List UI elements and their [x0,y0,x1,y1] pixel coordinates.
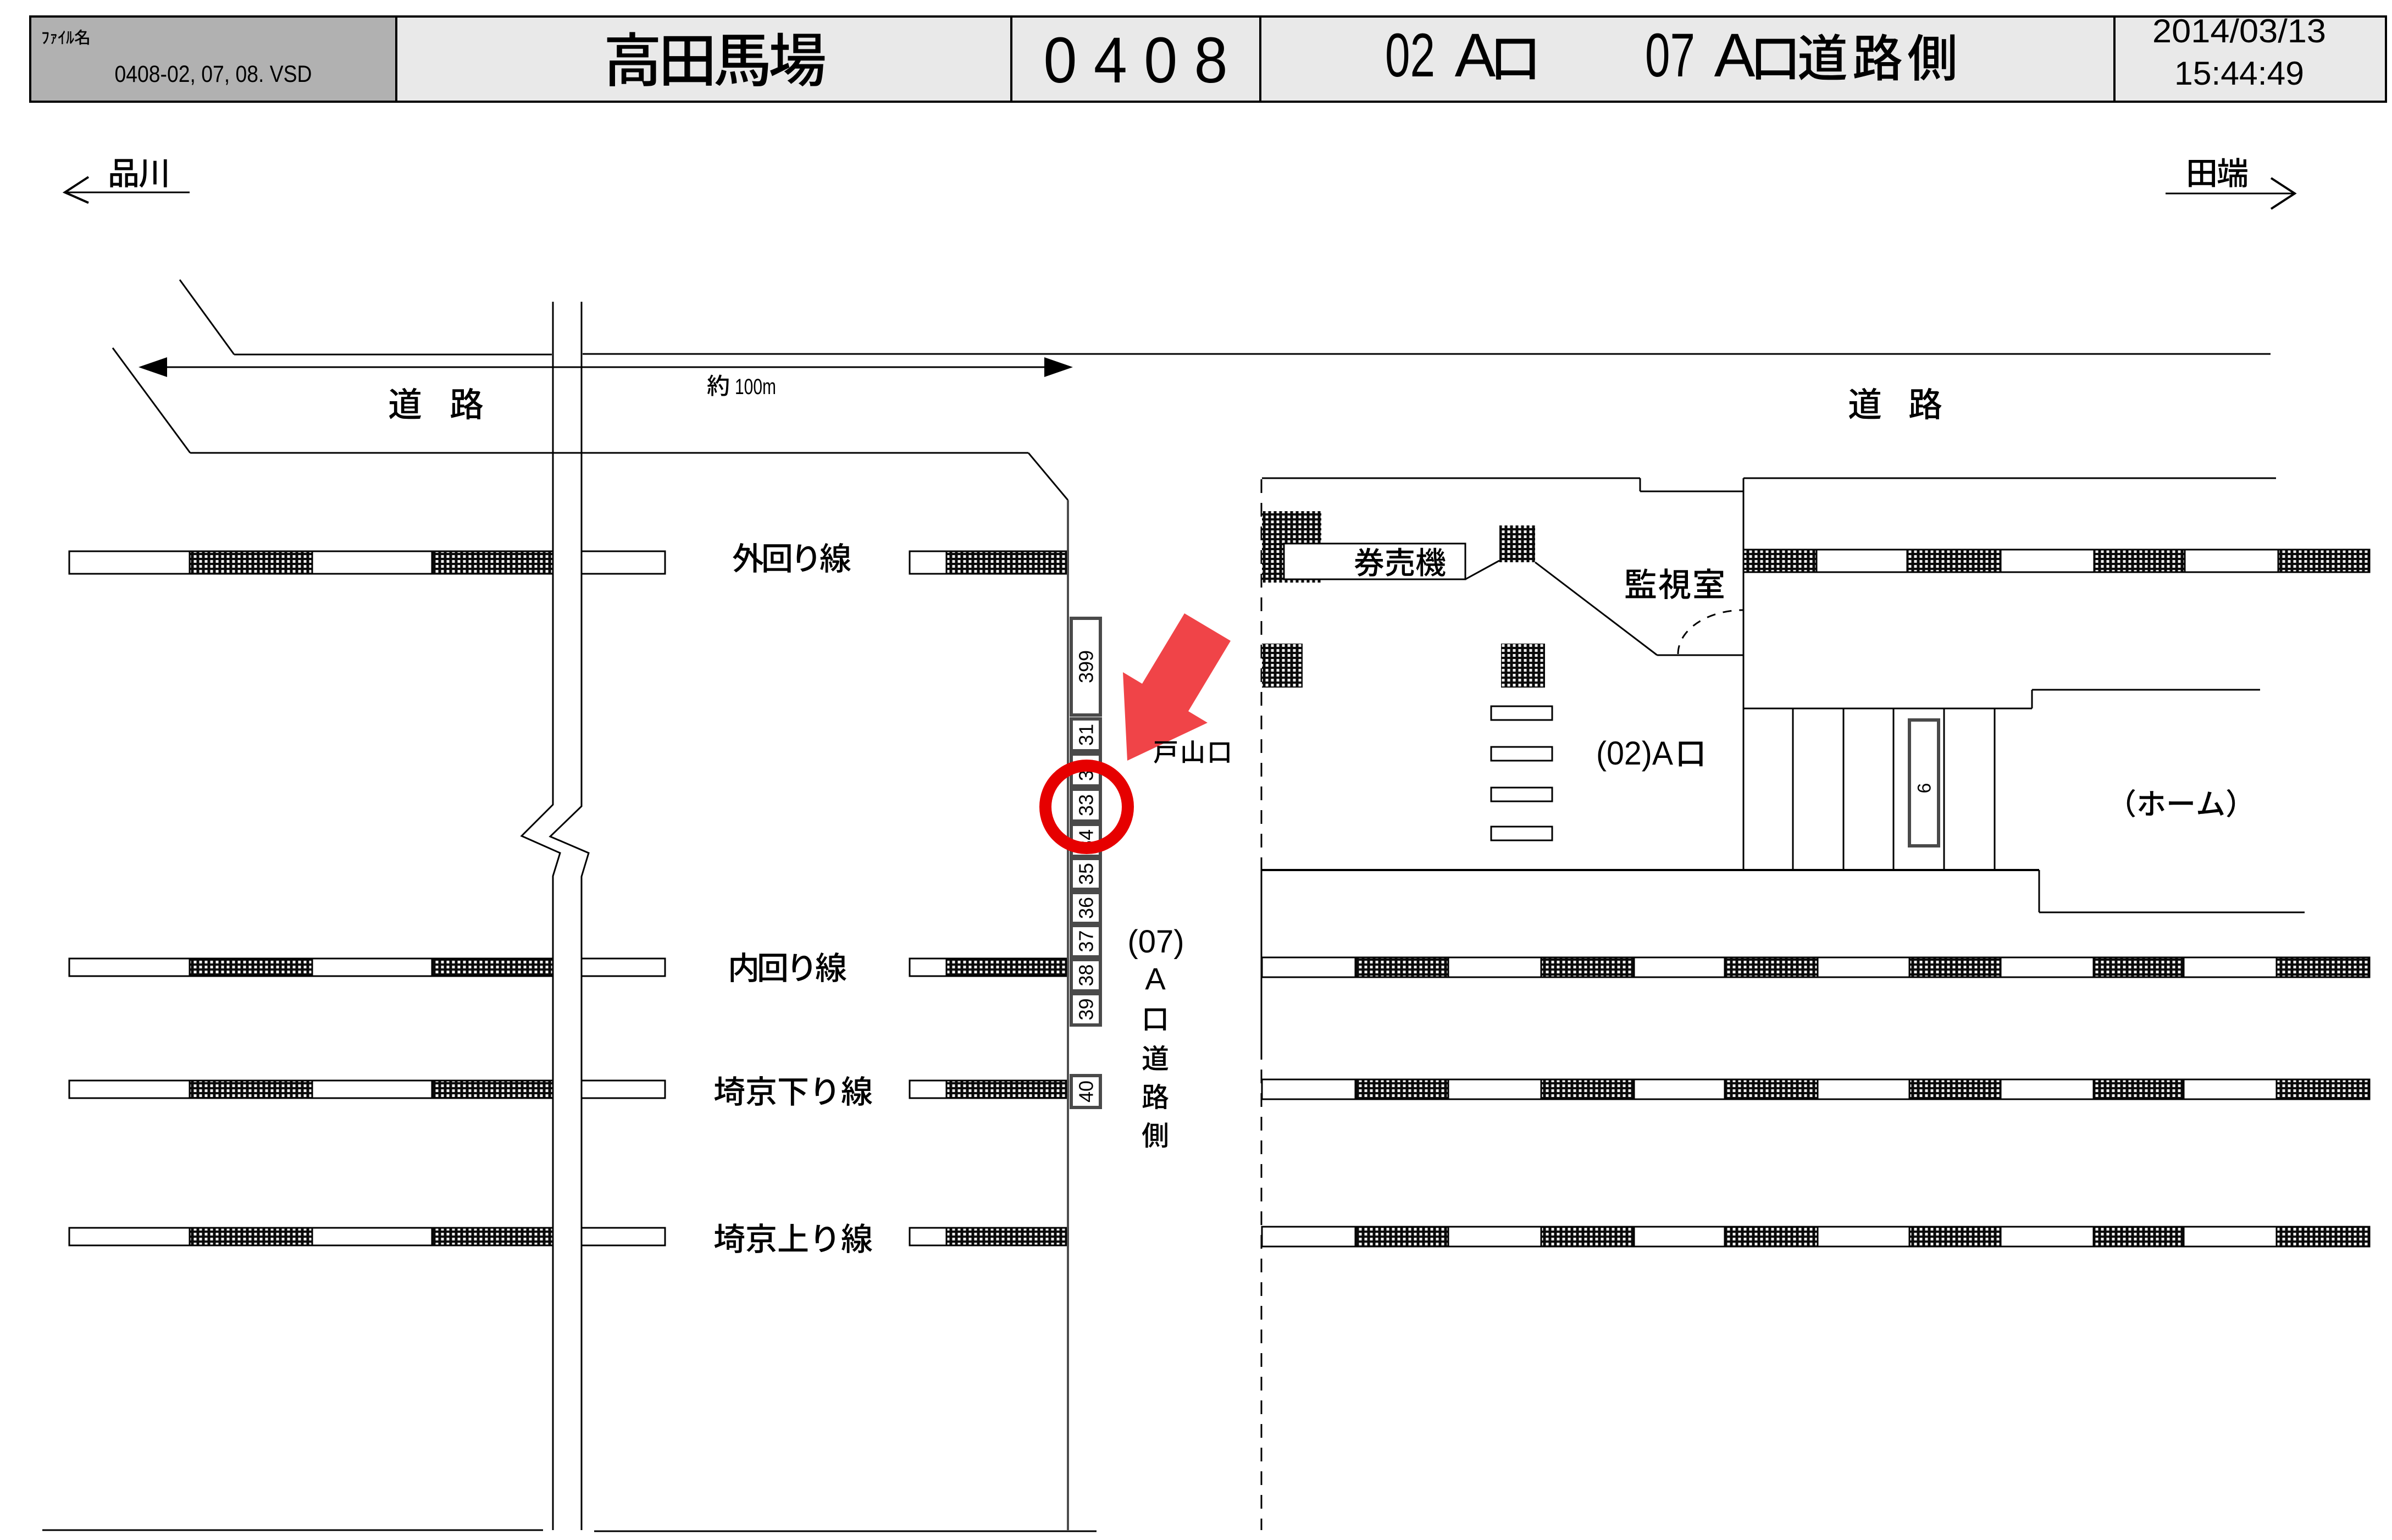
svg-text:(07): (07) [1127,924,1184,960]
svg-text:07: 07 [1645,21,1695,90]
svg-text:399: 399 [1075,650,1098,683]
svg-text:36: 36 [1075,897,1098,919]
svg-text:0 4 0 8: 0 4 0 8 [1044,24,1228,97]
svg-text:33: 33 [1075,794,1098,816]
svg-text:2014/03/13: 2014/03/13 [2152,13,2326,49]
svg-text:37: 37 [1075,930,1098,952]
svg-text:A: A [1455,21,1496,90]
svg-text:31: 31 [1075,724,1098,746]
svg-text:35: 35 [1075,863,1098,885]
svg-text:40: 40 [1075,1081,1098,1103]
svg-text:39: 39 [1075,998,1098,1020]
svg-text:0408-02, 07, 08. VSD: 0408-02, 07, 08. VSD [115,61,312,87]
svg-text:02: 02 [1385,21,1435,90]
svg-text:(02)A: (02)A [1596,735,1673,772]
svg-text:A: A [1714,21,1756,90]
svg-text:6: 6 [1914,783,1935,794]
svg-text:100m: 100m [735,375,776,399]
svg-text:A: A [1145,961,1166,996]
svg-text:38: 38 [1075,964,1098,986]
svg-text:15:44:49: 15:44:49 [2174,55,2304,92]
